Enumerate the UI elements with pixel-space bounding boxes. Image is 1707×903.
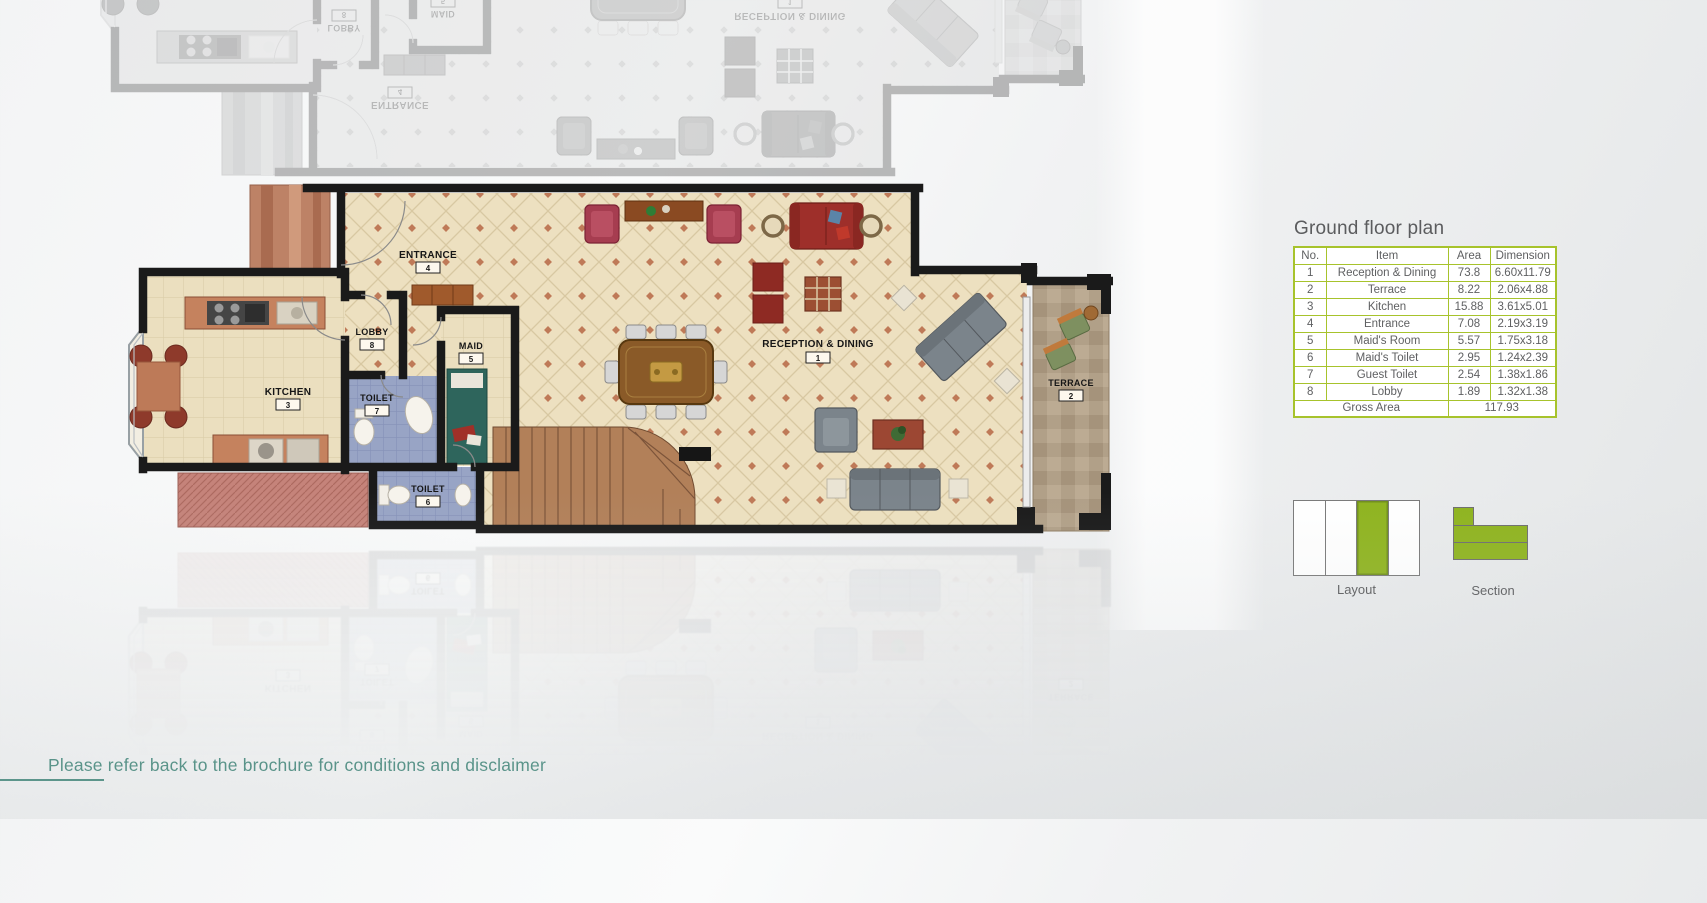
layout-diagram [1293,500,1420,576]
maid-room-floor [441,614,515,770]
room-number-lobby: 8 [370,730,375,739]
room-number-reception: 1 [816,354,821,363]
room-label-entrance: ENTRANCE [399,250,457,261]
gray-armchair [815,628,857,672]
room-number-maid-toilet: 6 [426,498,431,507]
terrace-floor [1005,0,1081,77]
long-gray-sofa [827,570,968,611]
room-label-maid-toilet: TOILET [411,484,445,494]
room-number-entrance: 4 [426,807,431,816]
layout-cell [1357,501,1389,575]
diamond-side-table-1 [891,769,916,794]
floor-plan-reflection: ENTRANCE 4 LOBBY 8 MAID 5 KITCHEN 3 TOIL… [123,538,1113,903]
room-label-maid-toilet: TOILET [411,586,445,596]
room-number-kitchen: 3 [286,670,291,679]
room-label-maid: MAID [459,729,483,739]
reception-floor [309,0,999,167]
table-cell: Kitchen [1326,298,1448,315]
room-label-reception: RECEPTION & DINING [762,730,874,741]
maid-toilet-fixtures [379,574,471,596]
room-label-reception: RECEPTION & DINING [734,10,846,21]
table-cell: 6.60x11.79 [1490,264,1556,281]
exterior-patio [178,473,368,527]
table-cell: 1.75x3.18 [1490,332,1556,349]
floor-plan-svg: ENTRANCE 4 LOBBY 8 MAID 5 KITCHEN 3 TOIL… [95,0,1085,183]
maid-toilet-number-box [416,573,440,584]
maid-number-box [459,716,483,727]
room-number-maid-toilet: 6 [426,573,431,582]
table-cell: 1.24x2.39 [1490,349,1556,366]
kitchen-number-box [276,670,300,681]
table-cell: Maid's Toilet [1326,349,1448,366]
table-row: 2Terrace8.222.06x4.88 [1294,281,1556,298]
wall-corner-blocks [989,0,1083,97]
room-number-guest-toilet: 7 [375,407,380,416]
room-number-maid: 5 [469,355,474,364]
room-number-terrace: 2 [1069,679,1074,688]
entrance-console [412,285,473,305]
room-label-lobby: LOBBY [328,23,361,33]
table-row: 1Reception & Dining73.86.60x11.79 [1294,264,1556,281]
door-arcs [302,613,475,879]
dining-table [577,0,699,35]
guest-toilet-floor [345,614,441,704]
layout-cell [1389,501,1420,575]
red-sofa [790,831,863,877]
table-header-cell: Item [1326,247,1448,264]
page-sheen [1095,0,1265,630]
room-number-maid: 5 [469,716,474,725]
section-shape-top [1453,507,1474,526]
room-label-guest-toilet: TOILET [360,677,394,687]
floor-plan-svg: ENTRANCE 4 LOBBY 8 MAID 5 KITCHEN 3 TOIL… [123,538,1113,903]
page-title: Ground floor plan [1294,218,1568,240]
kitchen-table [102,0,159,15]
table-cell: 3.61x5.01 [1490,298,1556,315]
layout-diagram-block: Layout [1293,500,1420,597]
section-shape-mid [1453,525,1528,543]
table-cell: 1 [1294,264,1326,281]
table-cell: 4 [1294,315,1326,332]
table-cell: 8.22 [1448,281,1490,298]
rattan-side-tables [735,124,853,144]
terrace-number-box [1059,679,1083,690]
gray-armchair [815,408,857,452]
kitchen-floor [143,612,345,808]
section-label: Section [1453,583,1533,598]
coffee-table [873,631,923,660]
walls [143,551,1111,892]
reception-window [995,0,1002,63]
bay-window-glass [106,0,115,27]
disclaimer-text: Please refer back to the brochure for co… [48,755,546,776]
table-cell: 5 [1294,332,1326,349]
wall-corner-blocks [1017,549,1111,817]
reception-floor [337,550,1027,887]
table-row: 7Guest Toilet2.541.38x1.86 [1294,366,1556,383]
maid-room-floor [413,0,487,50]
gray-sofa-diagonal [914,698,1007,788]
reception-number-box [806,717,830,728]
kitchen-counter-top [157,31,297,63]
room-number-lobby: 8 [370,341,375,350]
kitchen-counter-bottom [213,435,328,467]
room-label-kitchen: KITCHEN [265,682,312,693]
bay-window [129,618,143,753]
red-armchairs [557,117,713,155]
room-number-entrance: 4 [398,87,403,96]
kitchen-table [130,652,187,735]
exterior-patio [178,553,368,607]
table-row: 3Kitchen15.883.61x5.01 [1294,298,1556,315]
room-number-terrace: 2 [1069,392,1074,401]
table-cell: Guest Toilet [1326,366,1448,383]
room-number-maid: 5 [441,0,446,5]
table-cell: 1.32x1.38 [1490,383,1556,400]
reception-window [1023,573,1030,783]
entry-planter [222,85,302,175]
table-cell: 2.06x4.88 [1490,281,1556,298]
table-row: 6Maid's Toilet2.951.24x2.39 [1294,349,1556,366]
terrace-chairs [1043,709,1098,774]
footer-rule [0,779,104,781]
maid-number-box [431,0,455,7]
lobby-number-box [360,730,384,741]
lobby-floor [317,0,375,65]
dining-table [605,661,727,755]
diamond-side-table-2 [994,686,1019,711]
gray-sofa-diagonal [886,0,979,68]
lattice-table [805,277,841,311]
info-panel: Ground floor plan No.ItemAreaDimension 1… [1293,218,1568,418]
kitchen-floor [115,0,317,88]
red-sofa [790,203,863,249]
reception-sideboard [625,201,703,221]
table-cell: Lobby [1326,383,1448,400]
reception-window [1023,297,1030,507]
layout-label: Layout [1293,582,1420,597]
table-cell: Reception & Dining [1326,264,1448,281]
bay-window-glass [134,623,143,747]
table-body: 1Reception & Dining73.86.60x11.792Terrac… [1294,264,1556,400]
reception-number-box [778,0,802,8]
red-armchairs [585,837,741,875]
table-cell: Entrance [1326,315,1448,332]
room-label-entrance: ENTRANCE [399,819,457,830]
table-cell: 2.95 [1448,349,1490,366]
entrance-console [412,775,473,795]
terrace-floor [1033,549,1109,797]
rattan-side-tables [763,844,881,864]
entrance-number-box [388,87,412,98]
room-label-lobby: LOBBY [356,743,389,753]
guest-toilet-number-box [365,664,389,675]
kitchen-counter-top [185,297,325,329]
door-arcs [274,0,447,159]
room-label-guest-toilet: TOILET [360,393,394,403]
entry-planter [250,185,330,275]
table-footer-row: Gross Area 117.93 [1294,400,1556,417]
gross-area-value: 117.93 [1448,400,1556,417]
room-label-terrace: TERRACE [1048,378,1094,388]
maid-toilet-floor [373,556,480,613]
lobby-number-box [332,10,356,21]
room-label-lobby: LOBBY [356,327,389,337]
table-cell: 5.57 [1448,332,1490,349]
room-number-entrance: 4 [426,264,431,273]
table-header-cell: Dimension [1490,247,1556,264]
table-header-cell: No. [1294,247,1326,264]
floor-plan-svg: ENTRANCE 4 LOBBY 8 MAID 5 KITCHEN 3 TOIL… [123,177,1113,542]
room-number-reception: 1 [816,717,821,726]
guest-toilet-fixtures [354,635,437,687]
brochure-page: ENTRANCE 4 LOBBY 8 MAID 5 KITCHEN 3 TOIL… [0,0,1707,819]
entrance-number-box [416,807,440,818]
table-cell: 7 [1294,366,1326,383]
room-number-lobby: 8 [342,10,347,19]
room-label-maid: MAID [431,9,455,19]
red-poufs [725,37,755,97]
table-cell: 2.19x3.19 [1490,315,1556,332]
table-cell: 1.38x1.86 [1490,366,1556,383]
table-cell: 6 [1294,349,1326,366]
table-row: 8Lobby1.891.32x1.38 [1294,383,1556,400]
kitchen-counter-bottom [213,613,328,645]
terrace-chairs [1015,0,1070,54]
section-diagram-block: Section [1453,500,1533,598]
room-label-kitchen: KITCHEN [265,387,312,398]
table-cell: 2 [1294,281,1326,298]
diamond-side-table-1 [863,49,888,74]
table-cell: Maid's Room [1326,332,1448,349]
floor-table: No.ItemAreaDimension 1Reception & Dining… [1293,246,1557,418]
red-poufs [753,757,783,817]
walls [115,0,1083,172]
lattice-table [805,769,841,803]
corridor-floor [403,295,441,376]
maid-bed [447,616,487,711]
reception-sideboard [597,139,675,159]
section-shape-bottom [1453,542,1528,560]
table-header-row: No.ItemAreaDimension [1294,247,1556,264]
coffee-table [873,420,923,449]
layout-cell [1294,501,1326,575]
room-label-entrance: ENTRANCE [371,99,429,110]
table-cell: 8 [1294,383,1326,400]
room-number-kitchen: 3 [286,401,291,410]
section-diagram [1453,525,1533,577]
room-label-reception: RECEPTION & DINING [762,339,874,350]
table-cell: Terrace [1326,281,1448,298]
table-row: 5Maid's Room5.571.75x3.18 [1294,332,1556,349]
table-cell: 7.08 [1448,315,1490,332]
table-cell: 15.88 [1448,298,1490,315]
room-number-guest-toilet: 7 [375,664,380,673]
table-row: 4Entrance7.082.19x3.19 [1294,315,1556,332]
room-number-reception: 1 [788,0,793,6]
layout-cell [1326,501,1358,575]
floor-plan: ENTRANCE 4 LOBBY 8 MAID 5 KITCHEN 3 TOIL… [123,177,1113,542]
room-label-terrace: TERRACE [1048,692,1094,702]
table-cell: 1.89 [1448,383,1490,400]
lattice-table [777,49,813,83]
room-label-maid: MAID [459,341,483,351]
red-sofa [762,111,835,157]
entrance-console [384,55,445,75]
adjacent-unit-ghost-plan: ENTRANCE 4 LOBBY 8 MAID 5 KITCHEN 3 TOIL… [95,0,1085,183]
table-header-cell: Area [1448,247,1490,264]
reception-sideboard [625,859,703,879]
bay-window [101,0,115,33]
table-cell: 73.8 [1448,264,1490,281]
corridor-floor [375,0,413,65]
staircase [493,551,711,653]
gross-area-label: Gross Area [1294,400,1448,417]
table-cell: 3 [1294,298,1326,315]
table-cell: 2.54 [1448,366,1490,383]
